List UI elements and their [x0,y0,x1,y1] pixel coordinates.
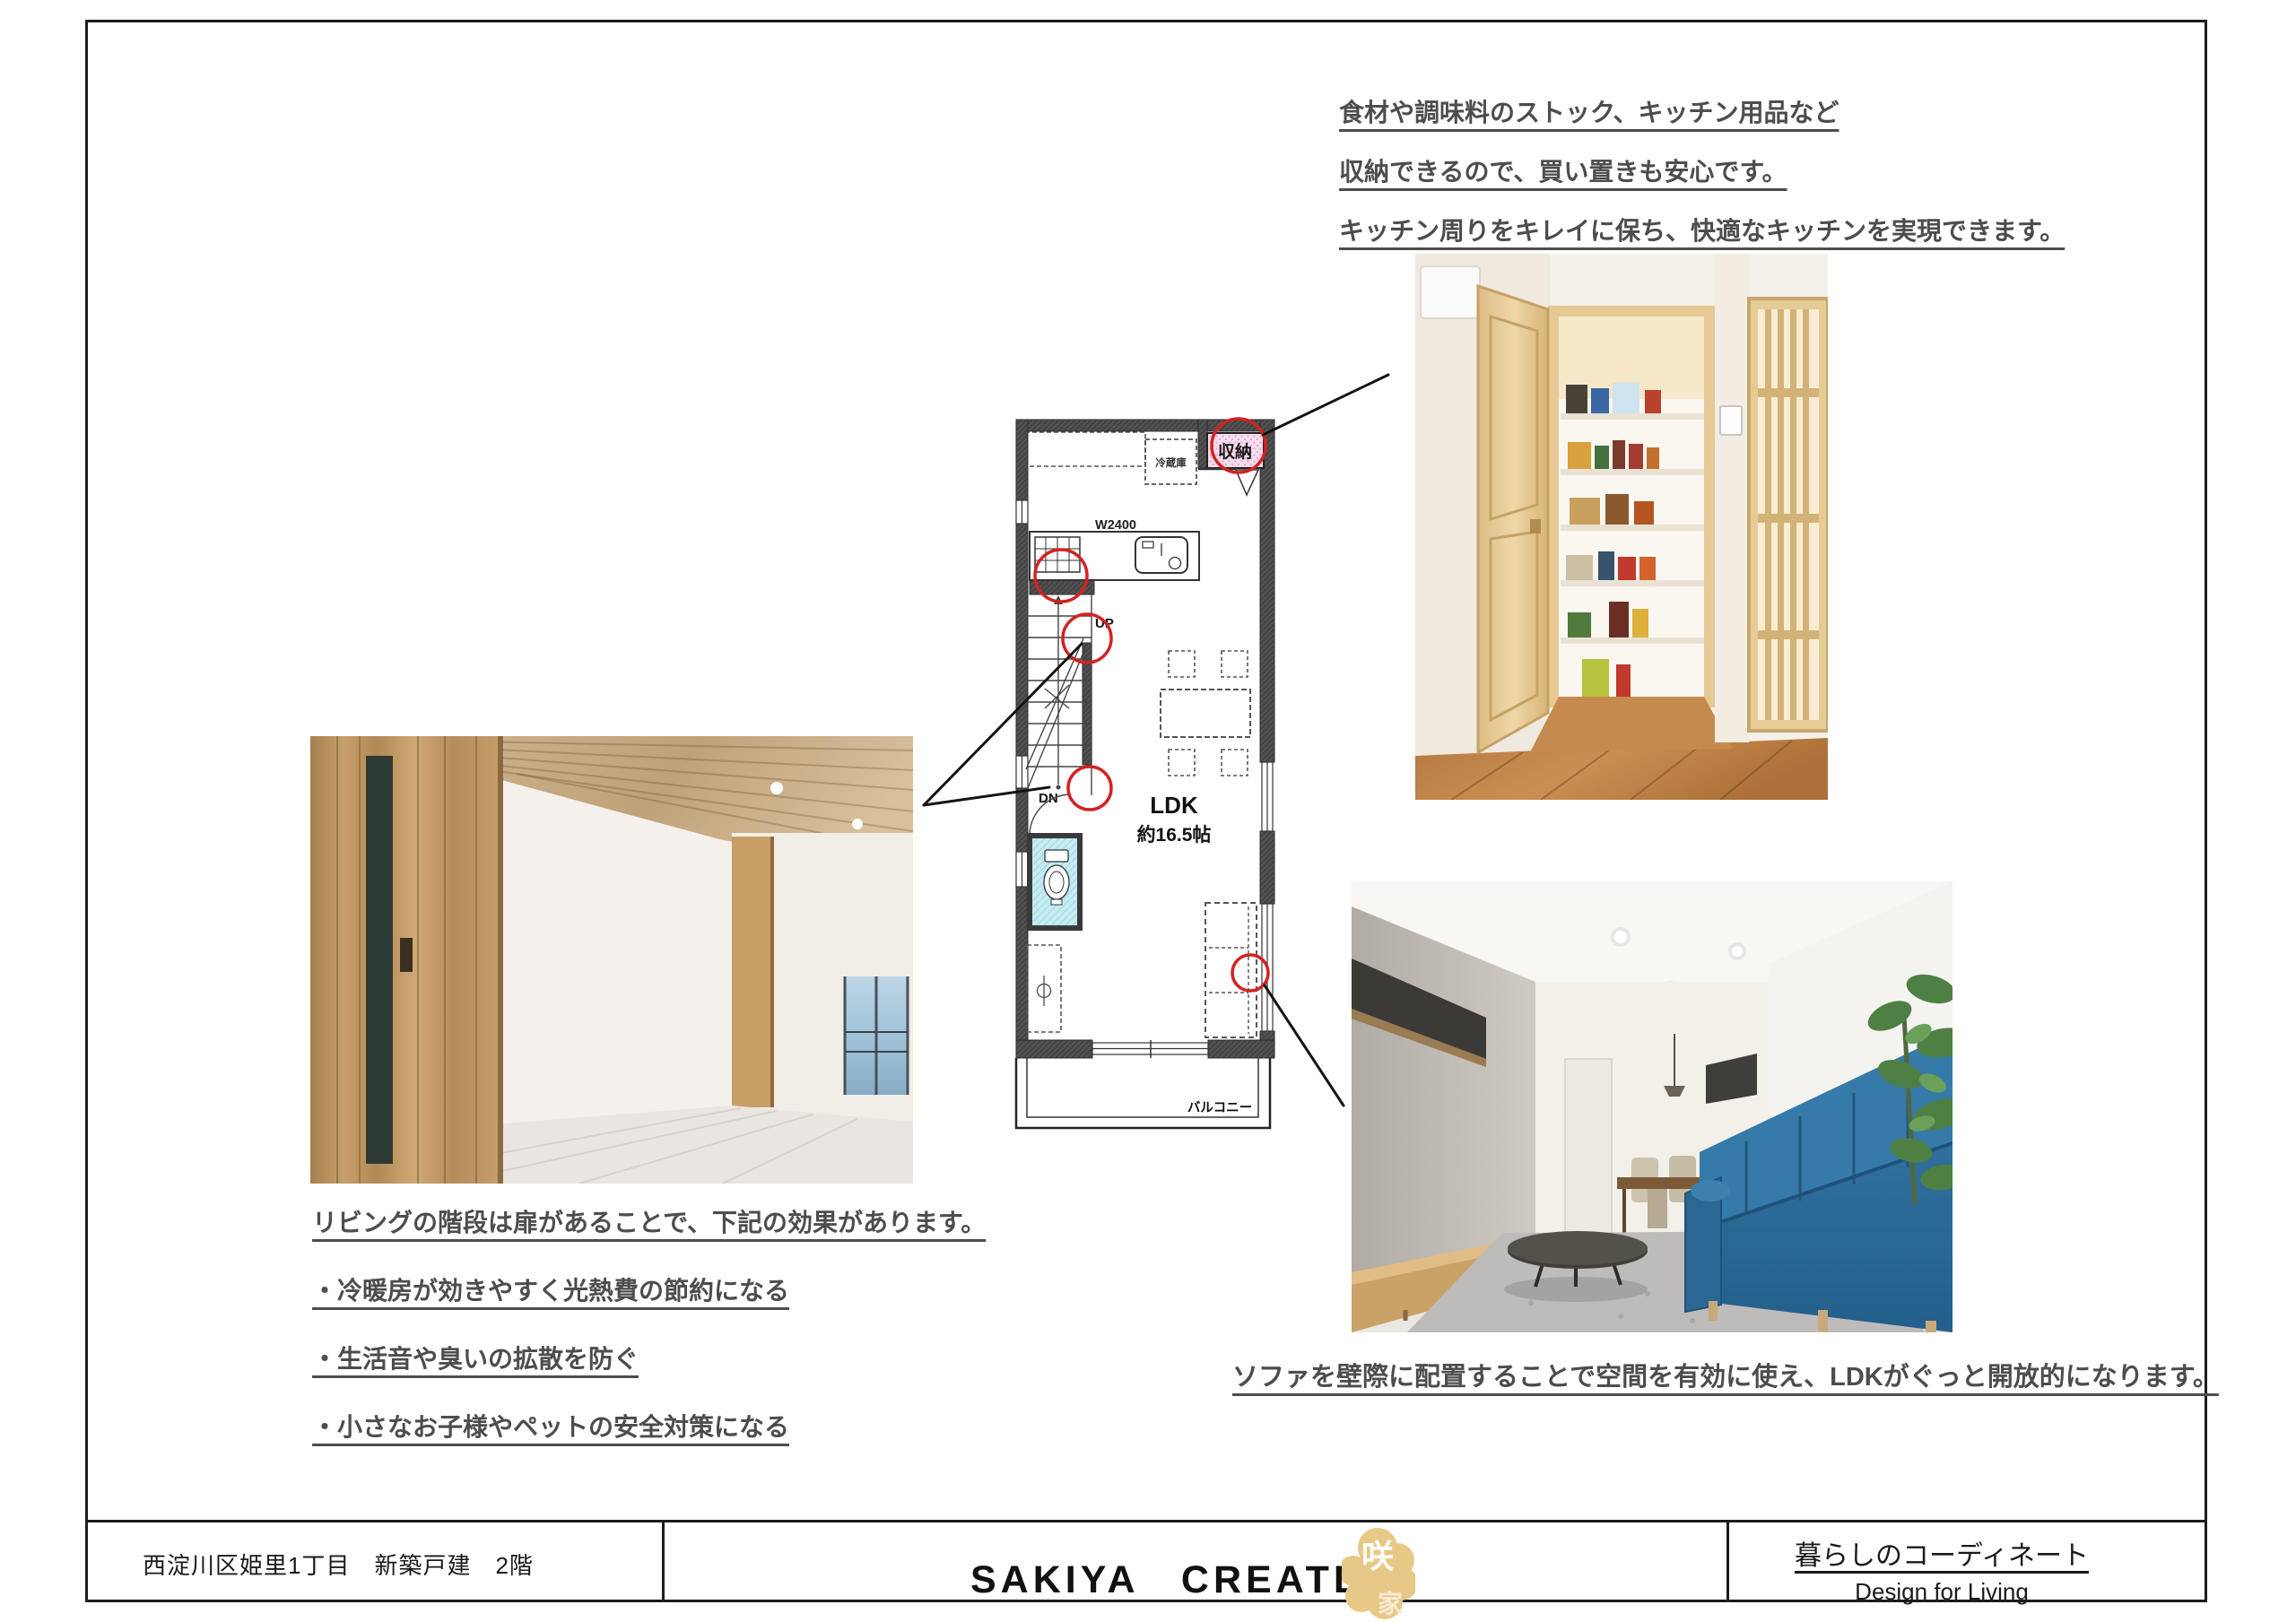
plan-stairs [1026,594,1091,795]
kitchen-note-line3: キッチン周りをキレイに保ち、快適なキッチンを実現できます。 [1339,212,2065,247]
storage-label: 収納 [1218,441,1252,462]
plan-toilet-room [1030,836,1080,928]
floor-plan: 冷蔵庫 収納 [1004,412,1283,1139]
annotation-circle-down [1068,767,1111,810]
toilet-icon [1045,850,1068,862]
logo-char-bottom: 家 [1378,1589,1403,1618]
wall-vent [1421,266,1480,318]
living-room-photo [1352,881,1952,1332]
plan-cabinet-dashed [1025,432,1145,466]
kitchen-storage-note: 食材や調味料のストック、キッチン用品など 収納できるので、買い置きも安心です。 … [1339,93,2065,271]
stairs-note-line1: リビングの階段は扉があることで、下記の効果があります。 [312,1203,986,1239]
hallway-far-door [732,837,773,1107]
refrigerator-label: 冷蔵庫 [1155,456,1187,469]
living-stairs-note: リビングの階段は扉があることで、下記の効果があります。 ・冷暖房が効きやすく光熱… [312,1203,986,1476]
company-name: SAKIYA CREATE [970,1548,1364,1604]
tagline-english: Design for Living [1726,1578,2157,1606]
downlight-icon [852,819,863,829]
hallway-photo [310,736,913,1184]
door-swing-symbol [1030,794,1071,834]
plan-balcony: バルコニー [1016,1058,1270,1128]
property-title: 西淀川区姫里1丁目 新築戸建 2階 [143,1548,534,1581]
logo-char-top: 咲 [1361,1538,1395,1574]
stairs-note-line4: ・小さなお子様やペットの安全対策になる [312,1408,986,1444]
ldk-size-label: 約16.5帖 [1137,824,1212,846]
stairs-note-line2: ・冷暖房が効きやすく光熱費の節約になる [312,1271,986,1307]
plan-tv-board [1027,945,1061,1032]
company-logo: 咲 家 [1342,1524,1415,1619]
ldk-label: LDK [1150,792,1198,819]
tagline-japanese: 暮らしのコーディネート [1726,1533,2157,1573]
plan-dining-set [1161,651,1250,776]
flyer-page: 食材や調味料のストック、キッチン用品など 収納できるので、買い置きも安心です。 … [0,0,2296,1622]
kitchen-note-line1: 食材や調味料のストック、キッチン用品など [1339,93,2065,129]
footer-tagline: 暮らしのコーディネート Design for Living [1726,1533,2157,1606]
pantry-interior-floor [1530,697,1733,752]
down-label: DN [1039,791,1058,806]
pantry-photo [1415,254,1828,800]
door-glass-strip [366,756,393,1164]
kitchen-note-line2: 収納できるので、買い置きも安心です。 [1339,152,2065,188]
counter-width-label: W2400 [1095,518,1136,533]
plan-kitchen-counter [1030,532,1199,580]
balcony-label: バルコニー [1187,1100,1252,1115]
sofa-note-line1: ソファを壁際に配置することで空間を有効に使え、LDKがぐっと開放的になります。 [1232,1356,2219,1393]
footer-top-border [85,1520,2207,1522]
wall-panel [1720,406,1742,435]
door-handle [400,938,413,972]
sofa-placement-note: ソファを壁際に配置することで空間を有効に使え、LDKがぐっと開放的になります。 [1232,1356,2219,1393]
door-handle [1530,519,1541,533]
footer-divider-left [662,1520,665,1602]
back-door [1565,1059,1612,1260]
downlight-icon [770,782,783,794]
stairs-note-line3: ・生活音や臭いの拡散を防ぐ [312,1340,986,1375]
shoji-door [1749,299,1828,731]
